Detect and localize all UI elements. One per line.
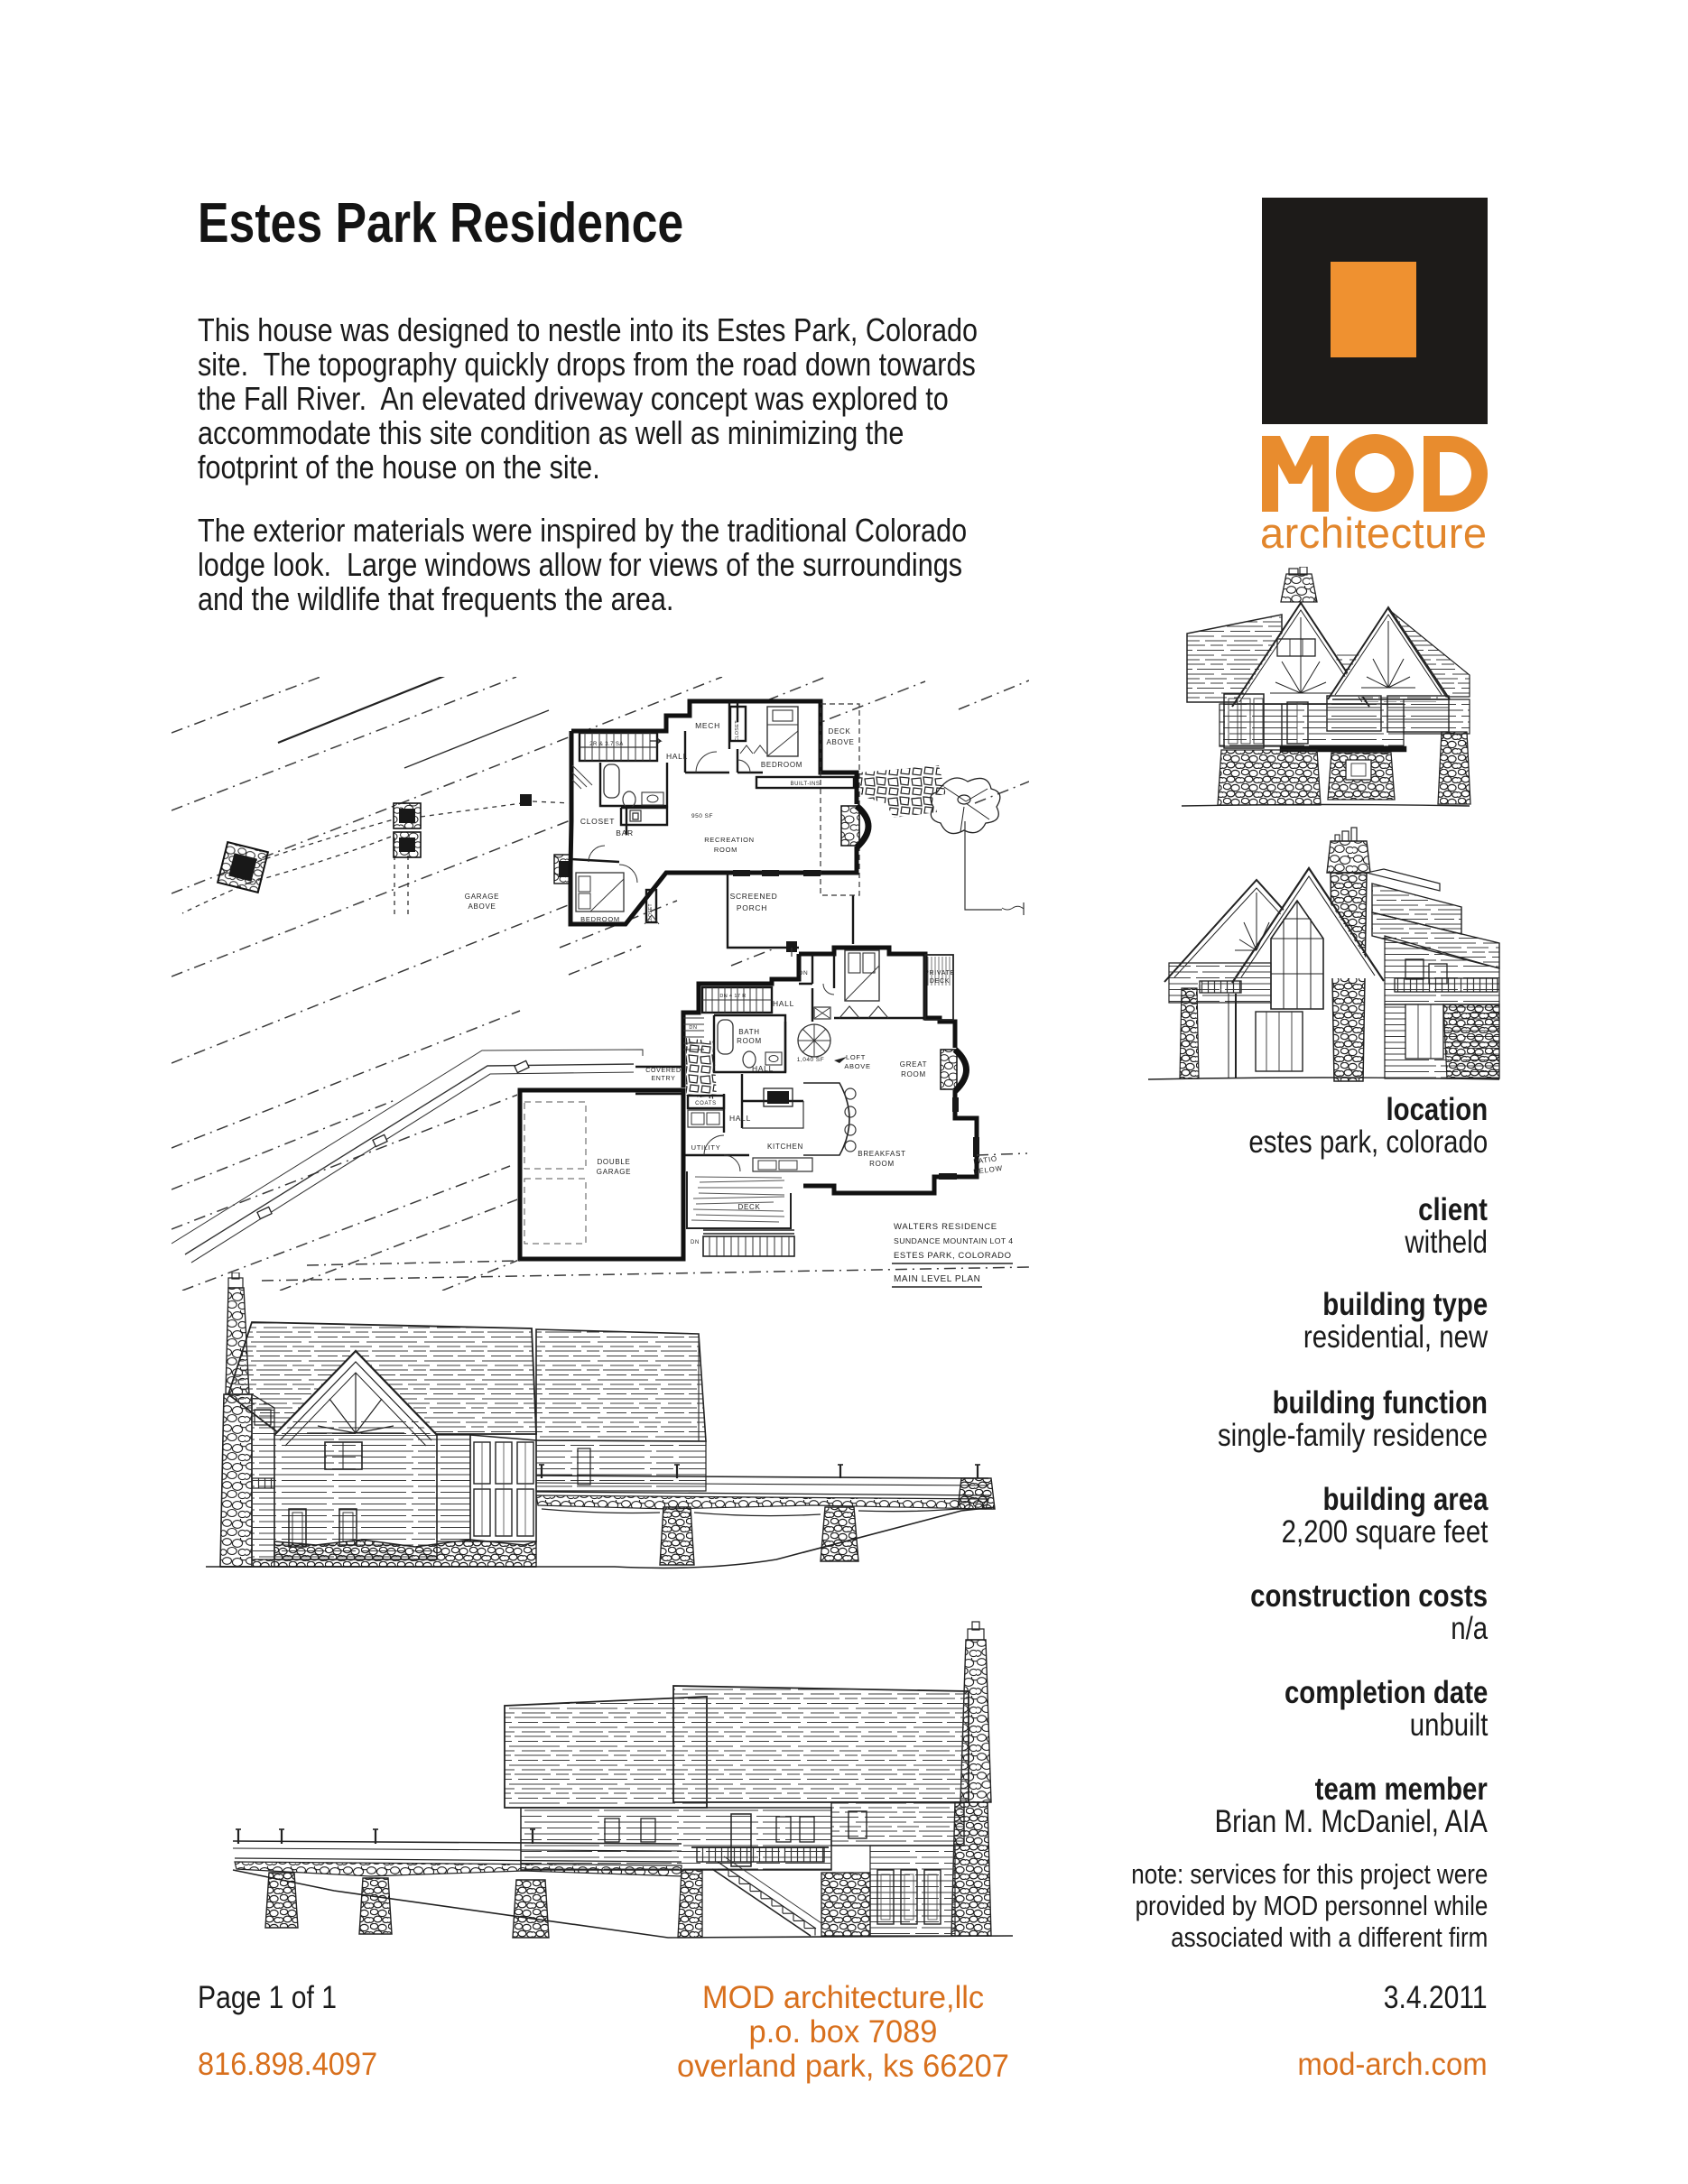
svg-text:CLOSET: CLOSET bbox=[735, 720, 740, 742]
svg-text:HALL: HALL bbox=[666, 752, 688, 761]
svg-text:ENTRY: ENTRY bbox=[651, 1076, 675, 1082]
svg-text:DN 4 17 R: DN 4 17 R bbox=[719, 994, 746, 999]
svg-text:BUILT-INS: BUILT-INS bbox=[791, 782, 821, 787]
svg-text:ROOM: ROOM bbox=[714, 846, 737, 854]
svg-text:COATS: COATS bbox=[695, 1101, 717, 1106]
svg-text:ROOM: ROOM bbox=[737, 1037, 762, 1045]
svg-text:CLOSET: CLOSET bbox=[648, 903, 654, 923]
svg-text:COVERED: COVERED bbox=[645, 1068, 682, 1074]
svg-text:WALTERS RESIDENCE: WALTERS RESIDENCE bbox=[894, 1222, 997, 1232]
svg-text:SCREENED: SCREENED bbox=[730, 892, 778, 901]
svg-text:ROOM: ROOM bbox=[901, 1070, 926, 1078]
svg-text:PORCH: PORCH bbox=[737, 903, 767, 912]
svg-text:BEDROOM: BEDROOM bbox=[580, 915, 620, 923]
svg-text:CLOSET: CLOSET bbox=[580, 817, 615, 826]
svg-text:1,040 SF: 1,040 SF bbox=[797, 1057, 824, 1063]
svg-text:ABOVE: ABOVE bbox=[826, 738, 854, 746]
svg-text:DN: DN bbox=[689, 1025, 697, 1031]
svg-text:BAR: BAR bbox=[616, 828, 634, 838]
svg-text:SUNDANCE MOUNTAIN LOT 4: SUNDANCE MOUNTAIN LOT 4 bbox=[894, 1236, 1013, 1245]
svg-text:HALL: HALL bbox=[773, 999, 794, 1008]
svg-text:GARAGE: GARAGE bbox=[597, 1168, 631, 1176]
svg-text:BEDROOM: BEDROOM bbox=[761, 761, 802, 769]
svg-text:ESTES PARK, COLORADO: ESTES PARK, COLORADO bbox=[894, 1251, 1012, 1261]
svg-text:HALL: HALL bbox=[752, 1064, 774, 1073]
svg-text:ROOM: ROOM bbox=[869, 1160, 895, 1168]
svg-text:950 SF: 950 SF bbox=[691, 813, 713, 819]
svg-text:BATH: BATH bbox=[738, 1028, 760, 1036]
svg-text:DOUBLE: DOUBLE bbox=[597, 1158, 630, 1166]
svg-text:MECH: MECH bbox=[695, 721, 720, 730]
svg-text:ABOVE: ABOVE bbox=[844, 1062, 870, 1070]
svg-text:HALL: HALL bbox=[729, 1114, 751, 1123]
svg-text:DECK: DECK bbox=[828, 727, 850, 736]
svg-text:DN: DN bbox=[691, 1240, 700, 1245]
svg-text:ABOVE: ABOVE bbox=[468, 902, 496, 911]
svg-text:GREAT: GREAT bbox=[900, 1060, 927, 1069]
svg-text:LOFT: LOFT bbox=[846, 1053, 866, 1061]
svg-text:RECREATION: RECREATION bbox=[704, 836, 755, 844]
svg-text:BREAKFAST: BREAKFAST bbox=[858, 1150, 905, 1158]
svg-text:architecture: architecture bbox=[1260, 509, 1488, 551]
svg-text:DN: DN bbox=[799, 970, 809, 976]
svg-text:DECK: DECK bbox=[930, 978, 950, 985]
svg-text:PRIVATE: PRIVATE bbox=[924, 970, 955, 976]
svg-text:GARAGE: GARAGE bbox=[465, 893, 499, 901]
svg-text:DECK: DECK bbox=[737, 1203, 760, 1211]
svg-text:UTILITY: UTILITY bbox=[691, 1143, 721, 1152]
svg-text:KITCHEN: KITCHEN bbox=[767, 1143, 803, 1151]
svg-text:2R & 3.7 SA: 2R & 3.7 SA bbox=[589, 742, 623, 747]
